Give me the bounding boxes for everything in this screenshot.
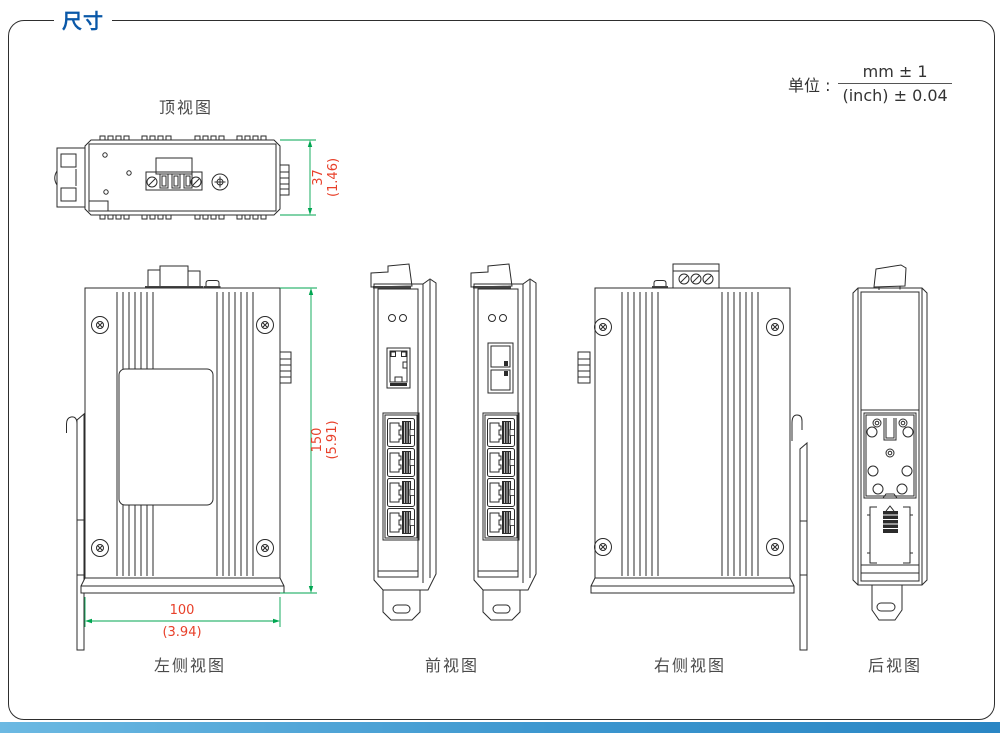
terminal-block [673,264,719,290]
side-connector [578,352,590,383]
device-body [85,136,280,219]
reset-button [204,281,221,289]
terminal-block [874,265,906,290]
dimension-height: 150 (5.91) [280,288,340,593]
terminal-block [145,266,203,289]
mounting-tab [872,585,902,620]
side-connector [280,165,289,195]
back-view-drawing [843,253,973,653]
front-unit-sfp [371,264,436,620]
front-view-drawing [358,256,558,651]
left-side-view-drawing: 150 (5.91) 100 (3.94) [55,256,345,656]
fiber-ports [488,343,513,393]
reset-button [652,281,668,289]
top-view-drawing: 37 (1.46) [50,128,350,228]
heatsink-fins [100,136,266,219]
footer-bar [0,722,1000,733]
front-unit-fiber [471,264,536,620]
svg-text:(3.94): (3.94) [162,625,201,640]
unit-annotation: 单位 : mm ± 1 (inch) ± 0.04 [788,62,952,105]
terminal-block [146,158,202,190]
din-clip-spring [883,506,898,533]
svg-text:(1.46): (1.46) [326,158,341,197]
svg-text:100: 100 [170,603,195,618]
right-side-view-label: 右侧视图 [654,652,726,676]
grounding-screw [212,174,228,190]
right-side-view-drawing [575,253,815,653]
dimension-drawing-page: 尺寸 单位 : mm ± 1 (inch) ± 0.04 顶视图 左侧视图 前视… [0,0,1000,733]
unit-fraction: mm ± 1 (inch) ± 0.04 [838,62,951,105]
label-plate [119,369,213,505]
back-view-label: 后视图 [868,652,922,676]
svg-text:150: 150 [310,428,325,453]
top-view-label: 顶视图 [159,94,213,118]
unit-denominator: (inch) ± 0.04 [838,83,951,105]
din-rail-plate [67,414,85,650]
screw-holes [103,153,131,194]
unit-prefix: 单位 : [788,72,830,96]
svg-text:(5.91): (5.91) [325,420,340,459]
sfp-port [387,348,410,388]
device-body [81,288,291,593]
unit-numerator: mm ± 1 [849,62,942,83]
side-connector [280,352,291,383]
svg-text:37: 37 [311,169,326,186]
din-rail-mount [864,413,916,563]
din-rail-plate [792,415,807,650]
device-body [578,288,794,593]
page-title: 尺寸 [54,5,112,34]
din-rail-clip [55,148,85,207]
front-view-label: 前视图 [425,652,479,676]
dimension-width: 100 (3.94) [85,597,280,640]
